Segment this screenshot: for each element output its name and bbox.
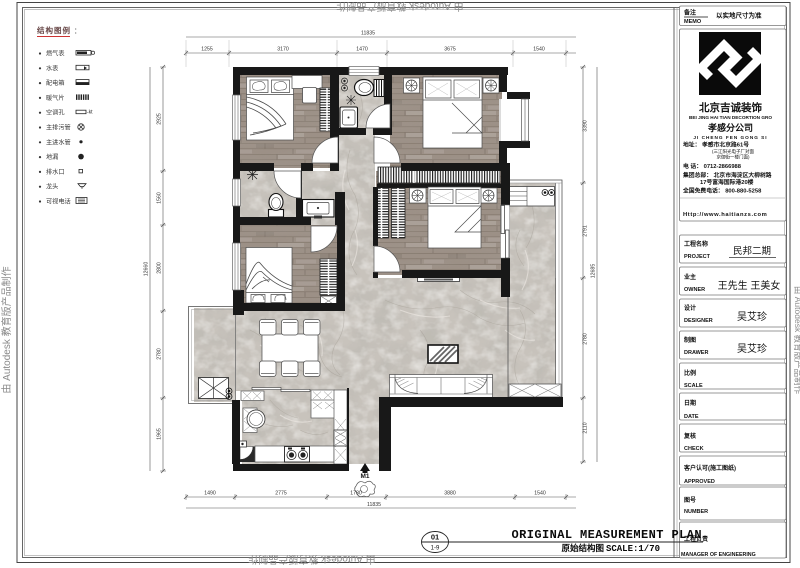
svg-text:1470: 1470: [356, 47, 368, 53]
svg-text:Http://www.haitianzs.com: Http://www.haitianzs.com: [683, 212, 767, 218]
svg-text:DRAWER: DRAWER: [684, 350, 708, 356]
svg-text:1780: 1780: [350, 491, 362, 497]
svg-text:JI CHENG FEN GONG SI: JI CHENG FEN GONG SI: [693, 135, 767, 140]
svg-text:-kt: -kt: [87, 110, 93, 116]
svg-text:2925: 2925: [157, 113, 163, 125]
svg-text:制图: 制图: [684, 336, 696, 344]
svg-text:MEMO: MEMO: [684, 19, 702, 25]
svg-text:配电箱: 配电箱: [46, 79, 65, 87]
svg-text:SCALE:1/70: SCALE:1/70: [606, 544, 660, 554]
svg-text:备注: 备注: [683, 9, 696, 17]
svg-text:1540: 1540: [533, 47, 545, 53]
svg-text:BEI JING HAI TIAN DECORTION GR: BEI JING HAI TIAN DECORTION GRO: [689, 115, 772, 120]
svg-text:吴艾珍: 吴艾珍: [737, 311, 767, 323]
svg-text:主排污管: 主排污管: [46, 124, 71, 132]
svg-text:主进水管: 主进水管: [46, 138, 71, 146]
svg-text:1560: 1560: [157, 192, 163, 204]
svg-text:暖气片: 暖气片: [46, 94, 65, 102]
svg-text:地址： 孝感市北京路61号: 地址： 孝感市北京路61号: [683, 141, 749, 149]
svg-text:01: 01: [431, 533, 439, 542]
svg-text:1-9: 1-9: [431, 546, 440, 552]
svg-text:图号: 图号: [684, 496, 696, 504]
svg-text:排水口: 排水口: [46, 168, 65, 176]
svg-text:集团总部： 北京市海淀区大柳树路: 集团总部： 北京市海淀区大柳树路: [682, 171, 772, 179]
svg-text:3880: 3880: [444, 491, 456, 497]
svg-text:11835: 11835: [361, 31, 375, 37]
svg-text:APPROVED: APPROVED: [684, 479, 715, 485]
svg-text:可视电话: 可视电话: [46, 198, 71, 206]
svg-text:NUMBER: NUMBER: [684, 509, 708, 515]
svg-text:PROJECT: PROJECT: [684, 254, 711, 260]
svg-text:1540: 1540: [534, 491, 546, 497]
svg-text:2780: 2780: [583, 333, 589, 345]
svg-text:1965: 1965: [157, 428, 163, 440]
svg-text:12660: 12660: [144, 262, 150, 277]
svg-text:龙头: 龙头: [46, 183, 58, 191]
svg-text:17号富海国际港20楼: 17号富海国际港20楼: [700, 178, 754, 186]
svg-text:由 Autodesk 教育版产品制作: 由 Autodesk 教育版产品制作: [336, 0, 463, 13]
svg-text:DATE: DATE: [684, 414, 699, 420]
svg-text:2775: 2775: [275, 491, 287, 497]
svg-text:北京吉诚装饰: 北京吉诚装饰: [699, 101, 762, 114]
svg-text:业主: 业主: [684, 273, 696, 281]
svg-text:3675: 3675: [444, 47, 456, 53]
svg-text:2800: 2800: [157, 262, 163, 274]
svg-text:3170: 3170: [277, 47, 289, 53]
svg-text:复核: 复核: [683, 432, 696, 440]
svg-text:空调孔: 空调孔: [46, 109, 65, 117]
svg-text:比例: 比例: [684, 369, 696, 377]
svg-text:客户认可(施工图纸): 客户认可(施工图纸): [683, 464, 736, 472]
svg-text:2780: 2780: [157, 348, 163, 360]
svg-text:OWNER: OWNER: [684, 287, 705, 293]
svg-text:SCALE: SCALE: [684, 383, 703, 389]
svg-text:3390: 3390: [583, 120, 589, 132]
svg-text:吴艾珍: 吴艾珍: [737, 343, 767, 355]
svg-text:ORIGINAL MEASUREMENT PLAN: ORIGINAL MEASUREMENT PLAN: [511, 528, 702, 542]
svg-text:电 话： 0712-2866988: 电 话： 0712-2866988: [683, 162, 742, 170]
svg-text:结构图例: 结构图例: [37, 25, 71, 35]
svg-text:燃气表: 燃气表: [46, 50, 65, 58]
svg-text:由 Autodesk 教育版产品制作: 由 Autodesk 教育版产品制作: [248, 553, 375, 566]
svg-text:2110: 2110: [583, 422, 589, 433]
svg-text:MANAGER OF ENGINEERING: MANAGER OF ENGINEERING: [681, 552, 756, 558]
svg-text:日期: 日期: [684, 399, 696, 407]
svg-text:1255: 1255: [201, 47, 213, 53]
svg-text:由 Autodesk 教育版产品制作: 由 Autodesk 教育版产品制作: [793, 286, 800, 395]
svg-text:民邦二期: 民邦二期: [733, 245, 771, 257]
svg-text:工程名称: 工程名称: [684, 240, 708, 248]
svg-text:王先生 王美女: 王先生 王美女: [718, 279, 781, 292]
svg-text:孝感分公司: 孝感分公司: [707, 122, 753, 133]
svg-text:原始结构图: 原始结构图: [561, 543, 604, 553]
svg-text:地漏: 地漏: [46, 153, 58, 161]
svg-text:：: ：: [74, 28, 81, 35]
svg-text:以实地尺寸为准: 以实地尺寸为准: [716, 11, 762, 20]
svg-text:水表: 水表: [46, 64, 58, 72]
svg-text:由 Autodesk 教育版产品制作: 由 Autodesk 教育版产品制作: [0, 266, 13, 393]
svg-text:全国免费电话： 800-880-5258: 全国免费电话： 800-880-5258: [682, 187, 762, 195]
svg-text:CHECK: CHECK: [684, 446, 704, 452]
svg-text:设计: 设计: [684, 304, 696, 312]
svg-text:京御街一楼门面): 京御街一楼门面): [717, 154, 750, 161]
svg-text:DESIGNER: DESIGNER: [684, 318, 713, 324]
svg-text:M1: M1: [360, 473, 369, 480]
svg-text:1490: 1490: [204, 491, 216, 497]
svg-text:2791: 2791: [583, 225, 589, 237]
svg-text:11835: 11835: [367, 502, 381, 508]
svg-text:12685: 12685: [591, 264, 597, 279]
